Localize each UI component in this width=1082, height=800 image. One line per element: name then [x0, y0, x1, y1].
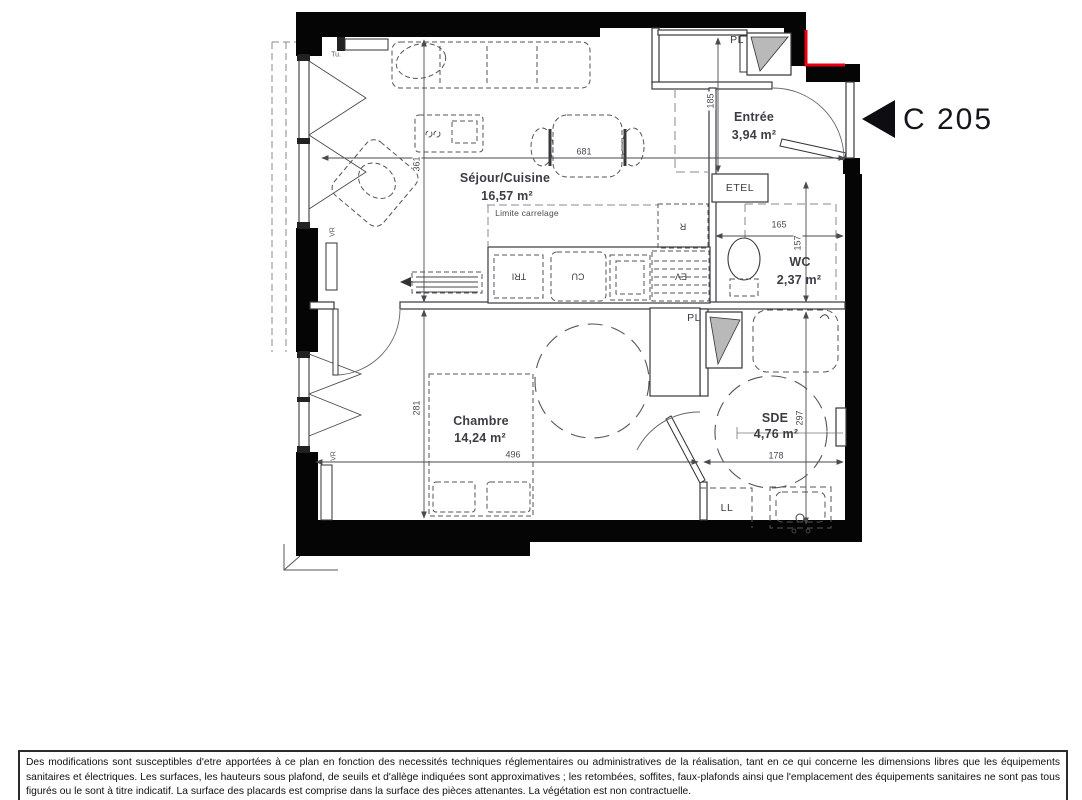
vr-sejour-label: VR	[330, 227, 337, 237]
dim-157: 157	[794, 233, 803, 252]
floor-plan: Séjour/Cuisine 16,57 m² Limite carrelage…	[0, 0, 1082, 745]
vr-chambre-label: VR	[331, 451, 338, 461]
radiators	[321, 37, 388, 520]
room-area-chambre: 14,24 m²	[454, 432, 506, 445]
room-area-sde: 4,76 m²	[754, 428, 798, 441]
corridor-wall	[846, 82, 854, 158]
closet-pl-top	[740, 33, 791, 75]
dim-496: 496	[503, 451, 522, 460]
disclaimer-box: Des modifications sont susceptibles d'et…	[18, 750, 1068, 800]
limite-carrelage-label: Limite carrelage	[495, 209, 559, 218]
kitchen-radiator-fins	[402, 277, 478, 292]
tri-label: TRI	[512, 272, 527, 281]
unit-arrow-icon	[862, 100, 895, 138]
red-wall-marking	[806, 30, 845, 65]
dim-681: 681	[574, 148, 593, 157]
pl-mid-label: PL	[687, 313, 701, 324]
wc-fixtures	[728, 238, 760, 296]
tu-annotation: Tu.	[331, 52, 341, 59]
cu-label: CU	[572, 272, 585, 281]
dim-185: 185	[707, 91, 716, 110]
room-area-sejour: 16,57 m²	[481, 190, 533, 203]
unit-label: C 205	[903, 103, 993, 137]
chambre-furniture	[429, 374, 533, 516]
ll-label: LL	[721, 503, 734, 514]
room-label-entree: Entrée	[734, 111, 774, 124]
room-label-sejour: Séjour/Cuisine	[460, 172, 550, 185]
turning-circle-chambre	[535, 324, 649, 438]
fridge-label: R	[680, 222, 687, 231]
etel-label: ETEL	[726, 183, 754, 194]
balcony-edge	[272, 42, 296, 352]
closet-pl-mid	[706, 312, 742, 368]
room-label-sde: SDE	[762, 412, 788, 425]
dim-281: 281	[413, 398, 422, 417]
flow-arrow-icon	[400, 277, 411, 287]
room-area-entree: 3,94 m²	[732, 129, 776, 142]
dim-165: 165	[769, 221, 788, 230]
dim-178: 178	[766, 452, 785, 461]
dim-297: 297	[796, 408, 805, 427]
room-label-wc: WC	[789, 256, 810, 269]
pl-top-label: PL	[730, 35, 744, 46]
ev-label: EV	[675, 272, 687, 281]
dim-361: 361	[413, 154, 422, 173]
disclaimer-text: Des modifications sont susceptibles d'et…	[26, 757, 1060, 797]
room-area-wc: 2,37 m²	[777, 274, 821, 287]
floorplan-page: Séjour/Cuisine 16,57 m² Limite carrelage…	[0, 0, 1082, 800]
room-label-chambre: Chambre	[453, 415, 509, 428]
